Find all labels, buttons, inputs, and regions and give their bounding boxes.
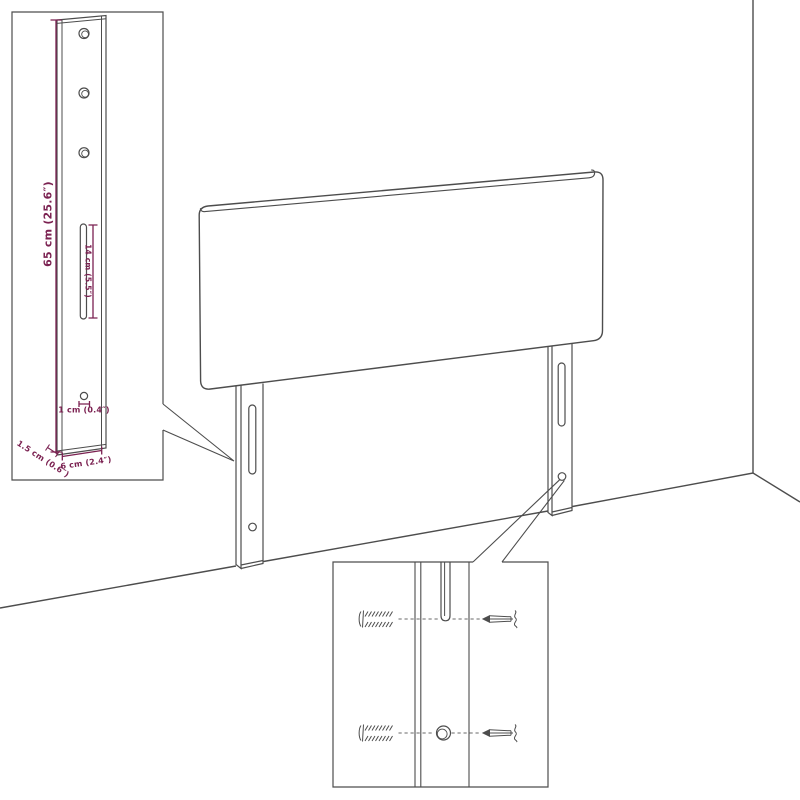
wall-plug-icon-top	[359, 611, 392, 628]
right-leg-slot	[558, 363, 565, 426]
headboard	[199, 170, 603, 389]
left-leg	[236, 384, 263, 569]
screw-icon-top	[483, 611, 517, 629]
right-leg	[548, 343, 572, 516]
left-leg-slot	[249, 405, 256, 474]
diagram-canvas: 65 cm (25.6″) 14 cm (5.5″) 1 cm (0.4″) 1…	[0, 0, 800, 800]
hardware-inset	[333, 562, 548, 787]
dimension-label-hole-size: 1 cm (0.4″)	[58, 406, 109, 415]
line-art	[0, 0, 800, 800]
callout-lines-bottom	[473, 480, 564, 562]
floor-line	[0, 473, 800, 608]
inset-slot-end	[441, 562, 450, 621]
right-leg-hole	[558, 473, 566, 481]
left-leg-hole	[249, 523, 257, 531]
inset-small-hole	[80, 392, 87, 399]
headboard-panel	[199, 172, 603, 389]
dimension-label-slot-length: 14 cm (5.5″)	[84, 244, 93, 298]
wall-plug-icon-bottom	[359, 725, 392, 742]
dimension-label-leg-height: 65 cm (25.6″)	[42, 181, 55, 267]
screw-icon-bottom	[483, 725, 517, 743]
callout-lines-left	[163, 404, 234, 461]
mounting-holes	[79, 29, 89, 158]
